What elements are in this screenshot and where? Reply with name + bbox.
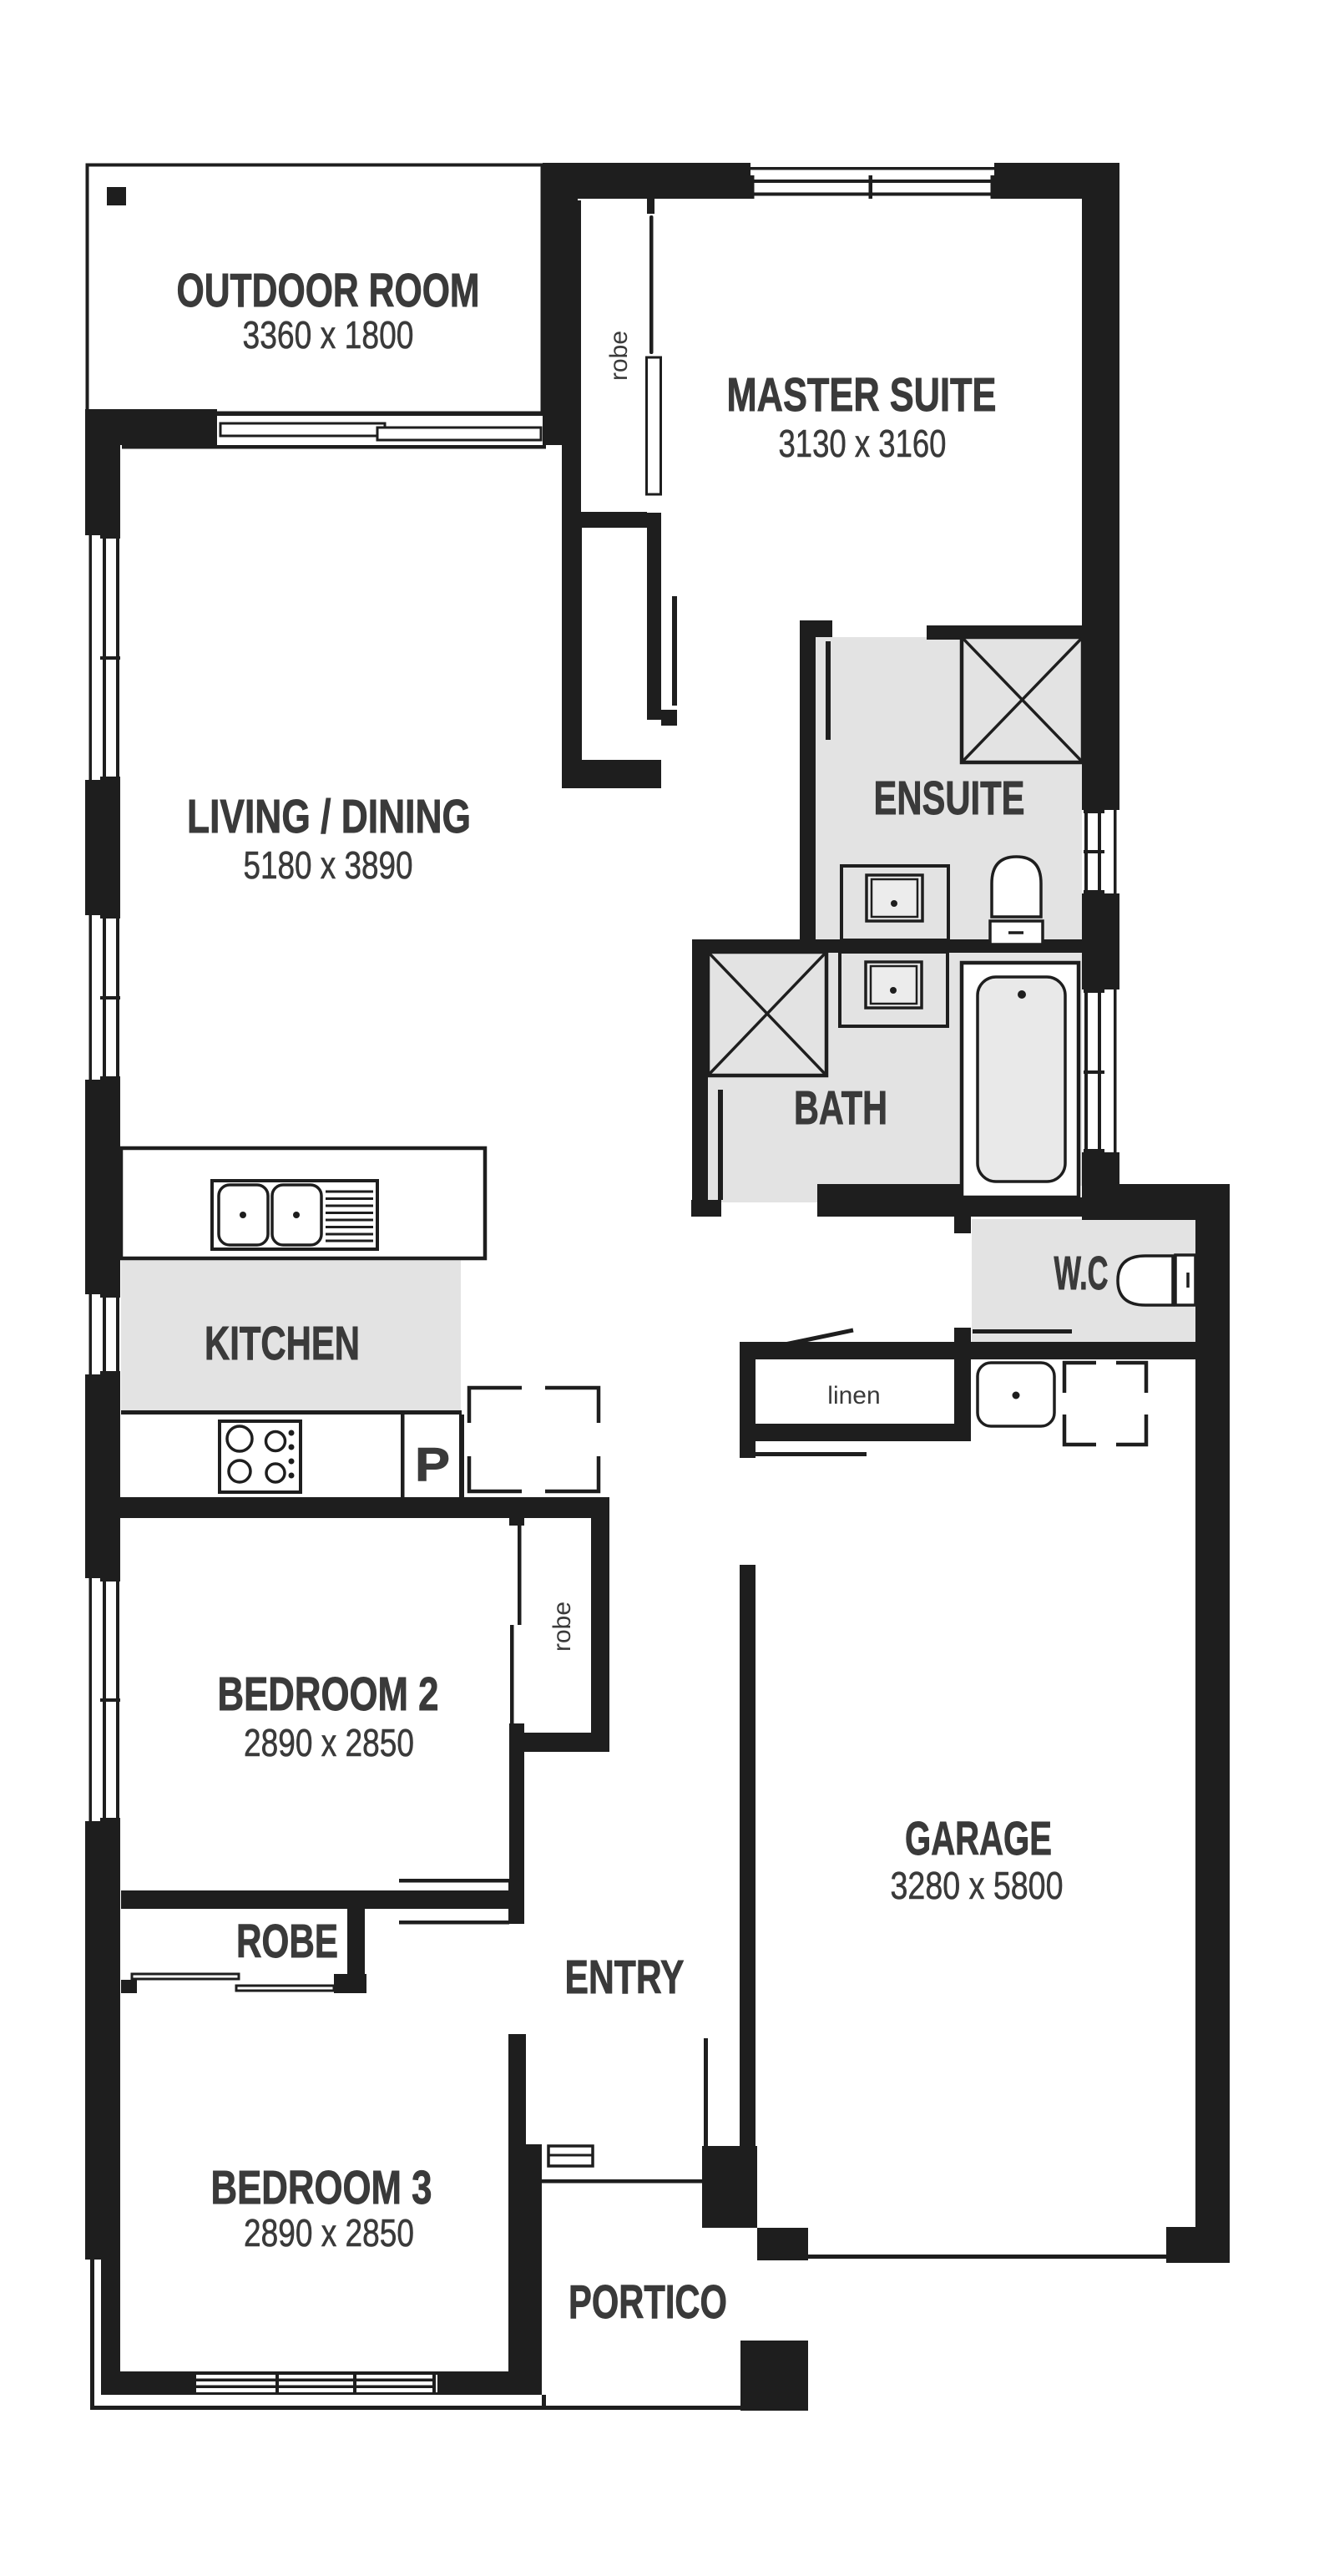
svg-text:ROBE: ROBE xyxy=(236,1915,338,1968)
svg-text:2890 x 2850: 2890 x 2850 xyxy=(244,2211,414,2255)
svg-text:OUTDOOR ROOM: OUTDOOR ROOM xyxy=(177,264,480,317)
svg-text:3280 x 5800: 3280 x 5800 xyxy=(891,1864,1064,1907)
svg-text:BEDROOM 3: BEDROOM 3 xyxy=(211,2161,432,2214)
svg-text:BEDROOM 2: BEDROOM 2 xyxy=(218,1668,439,1721)
svg-text:robe: robe xyxy=(548,1602,576,1652)
svg-text:BATH: BATH xyxy=(794,1081,887,1135)
svg-text:ENTRY: ENTRY xyxy=(565,1951,685,2004)
svg-text:3360 x 1800: 3360 x 1800 xyxy=(243,313,414,357)
svg-text:5180 x 3890: 5180 x 3890 xyxy=(244,843,413,887)
svg-text:linen: linen xyxy=(827,1382,880,1409)
svg-text:MASTER SUITE: MASTER SUITE xyxy=(727,368,997,422)
svg-text:2890 x 2850: 2890 x 2850 xyxy=(244,1721,414,1764)
svg-text:P: P xyxy=(415,1438,450,1491)
svg-text:robe: robe xyxy=(605,331,633,381)
svg-text:ENSUITE: ENSUITE xyxy=(874,772,1025,825)
svg-text:PORTICO: PORTICO xyxy=(569,2275,727,2329)
svg-text:LIVING / DINING: LIVING / DINING xyxy=(187,790,471,843)
svg-text:KITCHEN: KITCHEN xyxy=(205,1317,360,1370)
svg-text:W.C: W.C xyxy=(1054,1247,1109,1300)
svg-text:3130 x 3160: 3130 x 3160 xyxy=(779,422,947,465)
svg-text:GARAGE: GARAGE xyxy=(905,1812,1052,1865)
